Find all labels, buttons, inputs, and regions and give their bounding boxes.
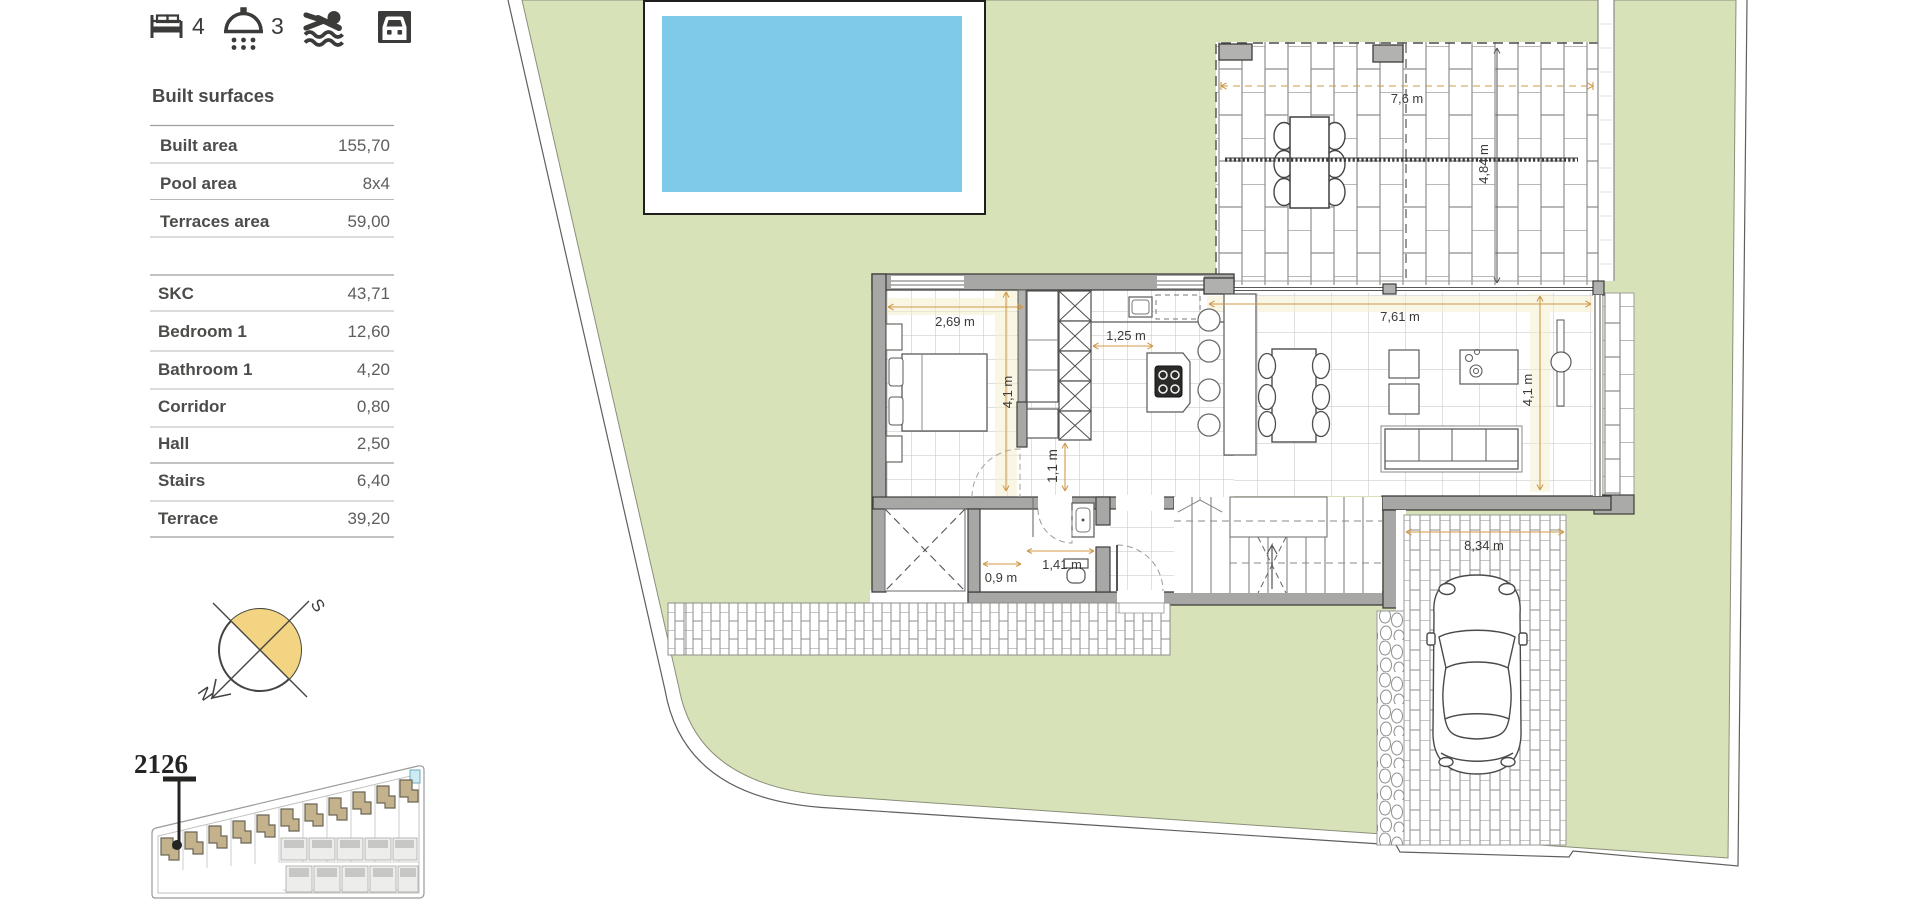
svg-text:SKC: SKC bbox=[158, 284, 194, 303]
svg-text:7,6 m: 7,6 m bbox=[1391, 91, 1424, 106]
svg-text:1,1 m: 1,1 m bbox=[1045, 449, 1060, 483]
svg-text:1,41 m: 1,41 m bbox=[1042, 557, 1082, 572]
svg-text:2,50: 2,50 bbox=[357, 434, 390, 453]
svg-text:4: 4 bbox=[192, 13, 205, 39]
svg-text:8,34 m: 8,34 m bbox=[1464, 538, 1504, 553]
svg-text:12,60: 12,60 bbox=[347, 322, 390, 341]
svg-text:4,84 m: 4,84 m bbox=[1476, 144, 1491, 184]
svg-text:Pool area: Pool area bbox=[160, 174, 237, 193]
svg-text:Stairs: Stairs bbox=[158, 471, 205, 490]
svg-text:0,80: 0,80 bbox=[357, 397, 390, 416]
svg-text:N: N bbox=[194, 683, 217, 704]
svg-text:Terrace: Terrace bbox=[158, 509, 218, 528]
svg-text:Corridor: Corridor bbox=[158, 397, 226, 416]
svg-text:Built area: Built area bbox=[160, 136, 238, 155]
svg-text:Built surfaces: Built surfaces bbox=[152, 85, 274, 106]
svg-text:7,61 m: 7,61 m bbox=[1380, 309, 1420, 324]
svg-text:0,9 m: 0,9 m bbox=[985, 570, 1018, 585]
svg-text:6,40: 6,40 bbox=[357, 471, 390, 490]
svg-text:Bathroom 1: Bathroom 1 bbox=[158, 360, 252, 379]
svg-text:Bedroom 1: Bedroom 1 bbox=[158, 322, 247, 341]
svg-text:39,20: 39,20 bbox=[347, 509, 390, 528]
svg-text:S: S bbox=[307, 595, 329, 615]
svg-text:4,1 m: 4,1 m bbox=[1520, 374, 1535, 407]
svg-text:8x4: 8x4 bbox=[363, 174, 390, 193]
svg-text:43,71: 43,71 bbox=[347, 284, 390, 303]
svg-text:Terraces area: Terraces area bbox=[160, 212, 270, 231]
svg-text:4,20: 4,20 bbox=[357, 360, 390, 379]
svg-text:Hall: Hall bbox=[158, 434, 189, 453]
svg-text:2,69 m: 2,69 m bbox=[935, 314, 975, 329]
svg-text:4,1 m: 4,1 m bbox=[1000, 376, 1015, 409]
svg-text:59,00: 59,00 bbox=[347, 212, 390, 231]
svg-text:3: 3 bbox=[271, 13, 284, 39]
svg-text:2126: 2126 bbox=[134, 749, 188, 779]
svg-text:155,70: 155,70 bbox=[338, 136, 390, 155]
svg-text:1,25 m: 1,25 m bbox=[1106, 328, 1146, 343]
